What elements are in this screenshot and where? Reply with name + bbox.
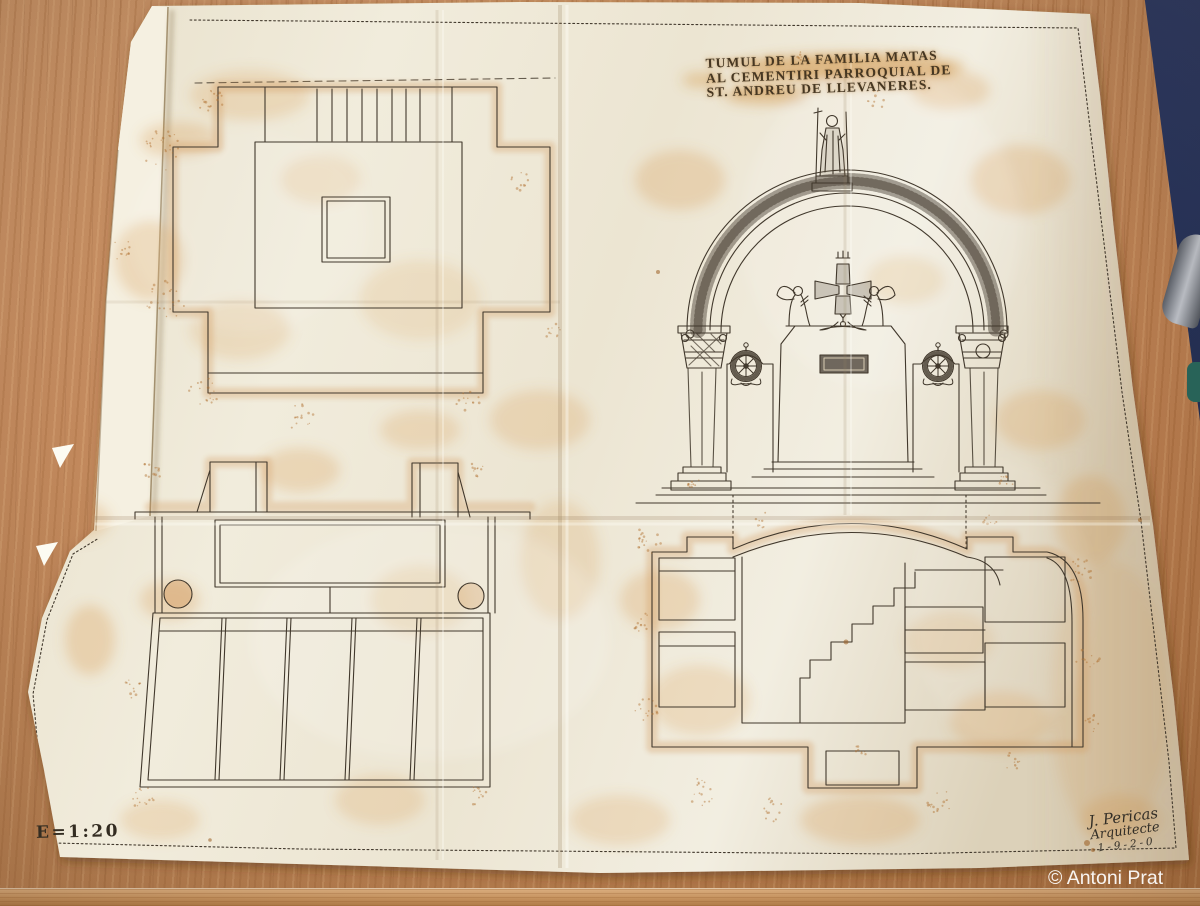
drawing-sheet	[0, 0, 1200, 906]
photo-of-architectural-drawing: TUMUL DE LA FAMILIA MATAS AL CEMENTIRI P…	[0, 0, 1200, 906]
torn-paper-notch	[36, 542, 58, 566]
photo-credit: © Antoni Prat	[1048, 867, 1163, 890]
torn-paper-notch	[52, 444, 74, 468]
scale-label: E=1:20	[36, 821, 120, 843]
